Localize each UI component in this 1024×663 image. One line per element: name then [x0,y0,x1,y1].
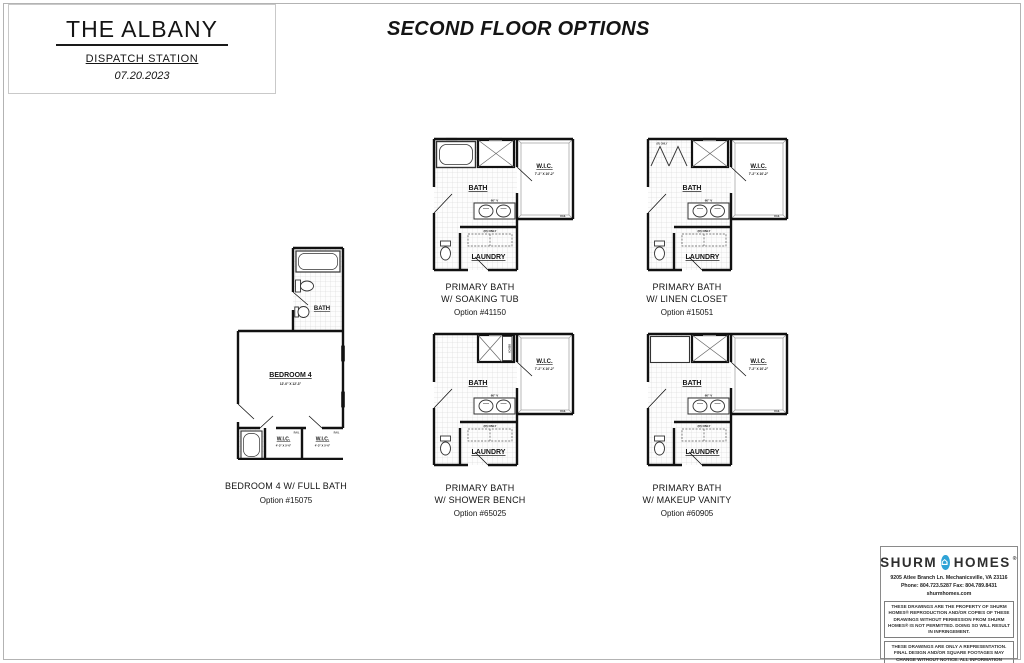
caption-line2: W/ LINEN CLOSET [607,294,767,306]
plan-primary-bath-shower-bench: BENCH BATH W.I.C. 7'-2" X 10'-2" LAUNDRY… [432,332,575,467]
laundry-note: (R) ONLY [483,229,496,233]
caption-option: Option #65025 [400,509,560,518]
brand-website: shurmhomes.com [881,590,1017,598]
caption-line2: W/ SOAKING TUB [400,294,560,306]
wic-label: W.I.C. [750,359,767,365]
vanity [688,398,729,414]
registered-mark: ® [1013,556,1018,562]
wic-label: W.I.C. [536,359,553,365]
caption-shower-bench: PRIMARY BATH W/ SHOWER BENCH Option #650… [400,483,560,518]
brand-right: HOMES [954,555,1011,570]
caption-soaking-tub: PRIMARY BATH W/ SOAKING TUB Option #4115… [400,282,560,317]
rail-note: RAIL [560,410,566,413]
disclaimer-property: THESE DRAWINGS ARE THE PROPERTY OF SHURM… [884,601,1014,638]
wic1-label: W.I.C. [277,437,291,443]
plan-primary-bath-makeup-vanity: BATH W.I.C. 7'-2" X 10'-2" LAUNDRY (R) O… [646,332,789,467]
plan-subtitle: DISPATCH STATION [9,53,275,65]
wic-carpet-border [731,334,787,414]
wic-dims: 7'-2" X 10'-2" [749,367,769,371]
builder-logo-block: SHURM ⌂ HOMES ® 9205 Atlee Branch Ln. Me… [880,546,1018,659]
brand-left: SHURM [880,555,937,570]
wic-carpet-border [517,334,573,414]
toilet-fixture [655,436,665,455]
toilet-fixture [655,241,665,260]
laundry-floor-tile [674,422,731,465]
plan-primary-bath-soaking-tub: BATH W.I.C. 7'-2" X 10'-2" LAUNDRY (R) O… [432,137,575,272]
shower [478,138,514,167]
soaking-tub-fixture [437,138,476,168]
caption-bedroom4: BEDROOM 4 W/ FULL BATH Option #15075 [206,481,366,505]
vanity-label: 60" V [705,199,713,203]
bedroom-label: BEDROOM 4 [269,372,312,379]
wic-label: W.I.C. [536,164,553,170]
shower [692,138,728,167]
laundry-label: LAUNDRY [472,254,506,261]
wic2-rail-note: RAIL [334,431,340,434]
shower [692,333,728,362]
wic1-dims: 4'-3" X 5'-0" [276,444,292,448]
caption-makeup-vanity: PRIMARY BATH W/ MAKEUP VANITY Option #60… [607,483,767,518]
caption-line1: PRIMARY BATH [400,282,560,294]
bath-label: BATH [683,380,702,387]
bedroom-dims: 12'-0" X 12'-3" [280,382,302,386]
vanity-label: 60" V [705,394,713,398]
plan-name-title: THE ALBANY [56,16,228,46]
wic-carpet-border [517,139,573,219]
vanity-label: 60" V [491,394,499,398]
drawing-sheet: THE ALBANY DISPATCH STATION 07.20.2023 S… [0,0,1024,663]
brand-contact: 9205 Atlee Branch Ln. Mechanicsville, VA… [881,574,1017,598]
caption-line1: PRIMARY BATH [607,282,767,294]
bath-label: BATH [469,185,488,192]
wic-label: W.I.C. [750,164,767,170]
makeup-vanity-counter [651,337,690,363]
wic-dims: 7'-2" X 10'-2" [535,367,555,371]
house-icon: ⌂ [941,555,950,570]
wic2-dims: 4'-3" X 5'-0" [315,444,331,448]
caption-line1: PRIMARY BATH [400,483,560,495]
title-block: THE ALBANY DISPATCH STATION 07.20.2023 [8,4,276,94]
bath-label: BATH [683,185,702,192]
vanity [688,203,729,219]
caption-line1: PRIMARY BATH [607,483,767,495]
bath-label: BATH [469,380,488,387]
laundry-note: (R) ONLY [697,229,710,233]
brand-phone-fax: Phone: 804.723.5287 Fax: 804.789.8431 [881,582,1017,590]
rail-note: RAIL [774,215,780,218]
bathtub-fixture [296,251,340,272]
rail-note: RAIL [774,410,780,413]
vanity-label: 60" V [491,199,499,203]
rail-note: RAIL [560,215,566,218]
laundry-label: LAUNDRY [472,449,506,456]
brand-address: 9205 Atlee Branch Ln. Mechanicsville, VA… [881,574,1017,582]
wic2-label: W.I.C. [316,437,330,443]
laundry-floor-tile [460,422,517,465]
sink-fixture [295,307,309,318]
laundry-label: LAUNDRY [686,254,720,261]
toilet-fixture [441,241,451,260]
toilet-fixture [441,436,451,455]
caption-option: Option #60905 [607,509,767,518]
disclaimer-representation: THESE DRAWINGS ARE ONLY A REPRESENTATION… [884,641,1014,663]
laundry-note: (R) ONLY [483,424,496,428]
plan-bedroom4-full-bath: BATH BEDROOM 4 12'-0" X 12'-3" W.I.C. 4'… [230,246,345,460]
bath-label: BATH [314,306,330,312]
vanity [474,398,515,414]
caption-name: BEDROOM 4 W/ FULL BATH [206,481,366,493]
laundry-label: LAUNDRY [686,449,720,456]
laundry-floor-tile [460,227,517,270]
wic-carpet-border [731,139,787,219]
caption-linen-closet: PRIMARY BATH W/ LINEN CLOSET Option #150… [607,282,767,317]
vanity [474,203,515,219]
laundry-floor-tile [674,227,731,270]
caption-line2: W/ MAKEUP VANITY [607,495,767,507]
toilet-fixture [296,280,314,292]
caption-option: Option #15075 [206,496,366,505]
bench-label: BENCH [507,344,510,353]
lower-bathtub-fixture [241,431,262,459]
laundry-note: (R) ONLY [697,424,710,428]
sheet-heading: SECOND FLOOR OPTIONS [387,18,650,41]
caption-line2: W/ SHOWER BENCH [400,495,560,507]
wic-dims: 7'-2" X 10'-2" [749,172,769,176]
closet-note: (R) ONLY [657,143,668,146]
caption-option: Option #15051 [607,308,767,317]
wic1-rail-note: RAIL [294,431,300,434]
plan-primary-bath-linen-closet: (R) ONLY BATH W.I.C. 7'-2" X 10'-2" LAUN… [646,137,789,272]
brand-row: SHURM ⌂ HOMES ® [881,555,1017,570]
plan-date: 07.20.2023 [9,70,275,82]
caption-option: Option #41150 [400,308,560,317]
wic-dims: 7'-2" X 10'-2" [535,172,555,176]
